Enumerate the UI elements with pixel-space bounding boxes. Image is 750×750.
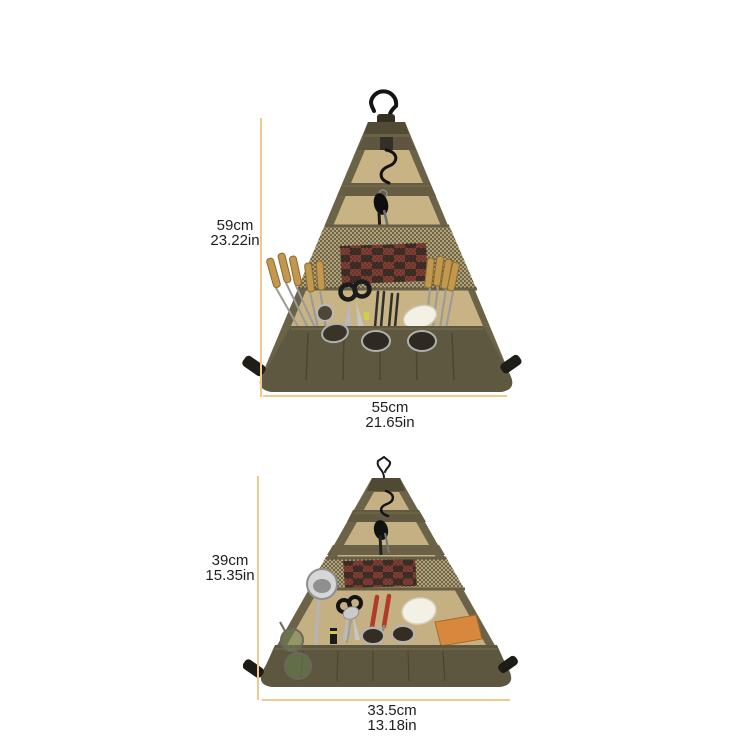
spoon-in-pocket [362, 331, 390, 351]
bottom-height-in: 15.35in [180, 568, 280, 583]
top-width-cm: 55cm [338, 400, 442, 415]
spoon-in-pocket [362, 628, 384, 644]
bottom-width-dimension-line [262, 699, 510, 701]
product-dimension-sheet: 59cm 23.22in 55cm 21.65in [0, 0, 750, 750]
top-height-in: 23.22in [185, 233, 285, 248]
bottom-product-photo [243, 455, 523, 705]
top-width-in: 21.65in [338, 415, 442, 430]
bottom-height-label: 39cm 15.35in [180, 553, 280, 583]
pocket-row [261, 322, 512, 392]
top-width-dimension-line [263, 395, 507, 397]
spoon-in-pocket [408, 331, 436, 351]
top-height-label: 59cm 23.22in [185, 218, 285, 248]
bottom-width-label: 33.5cm 13.18in [342, 703, 442, 733]
top-width-label: 55cm 21.65in [338, 400, 442, 430]
bottom-width-cm: 33.5cm [342, 703, 442, 718]
bottom-height-dimension-line [257, 476, 259, 700]
spoon-in-pocket [392, 626, 414, 642]
scissors-tag [364, 312, 369, 320]
bottom-width-in: 13.18in [342, 718, 442, 733]
flashlight [330, 628, 337, 644]
wire-hook-icon [378, 457, 390, 478]
bottom-height-cm: 39cm [180, 553, 280, 568]
top-height-cm: 59cm [185, 218, 285, 233]
top-height-dimension-line [260, 118, 262, 397]
